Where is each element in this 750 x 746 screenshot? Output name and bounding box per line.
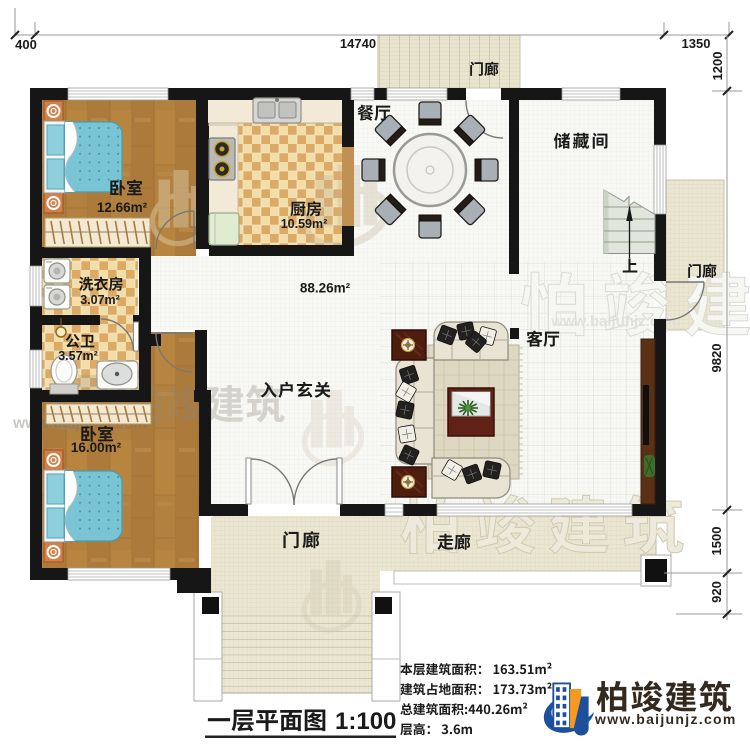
svg-text:3.07m²: 3.07m²	[80, 293, 120, 307]
svg-text:www.baijunjz.com: www.baijunjz.com	[594, 711, 737, 727]
svg-text:920: 920	[709, 581, 724, 603]
svg-text:www.baijunjz.com: www.baijunjz.com	[531, 596, 687, 616]
svg-text:14740: 14740	[340, 36, 376, 51]
svg-text:1350: 1350	[682, 36, 711, 51]
svg-text:9820: 9820	[709, 344, 724, 373]
svg-text:1:100: 1:100	[335, 708, 396, 735]
svg-text:3.57m²: 3.57m²	[58, 349, 98, 363]
svg-text:16.00m²: 16.00m²	[71, 440, 122, 455]
svg-text:12.66m²: 12.66m²	[97, 200, 148, 215]
svg-text:88.26m²: 88.26m²	[300, 281, 351, 296]
svg-text:400: 400	[15, 37, 37, 52]
svg-text:10.59m²: 10.59m²	[281, 217, 328, 231]
svg-text:1200: 1200	[710, 52, 725, 81]
svg-text:1500: 1500	[709, 527, 724, 556]
